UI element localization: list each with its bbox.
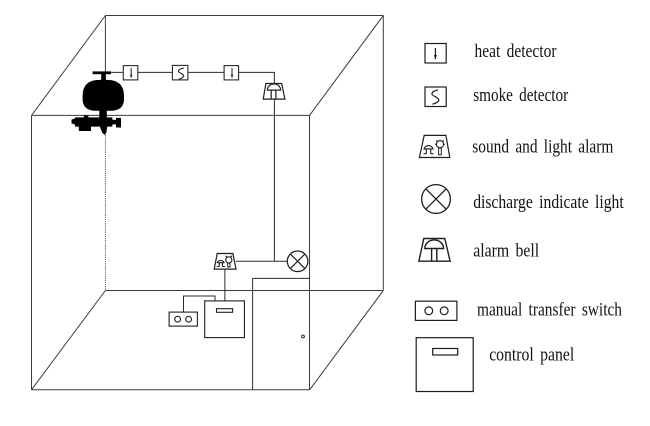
svg-text:smoke detector: smoke detector xyxy=(473,85,569,106)
svg-text:sound and light alarm: sound and light alarm xyxy=(472,137,613,158)
svg-text:heat detector: heat detector xyxy=(475,41,558,62)
svg-text:discharge indicate light: discharge indicate light xyxy=(473,192,624,213)
svg-text:manual transfer switch: manual transfer switch xyxy=(477,300,622,321)
svg-text:alarm bell: alarm bell xyxy=(473,241,539,262)
svg-text:control panel: control panel xyxy=(489,345,574,366)
